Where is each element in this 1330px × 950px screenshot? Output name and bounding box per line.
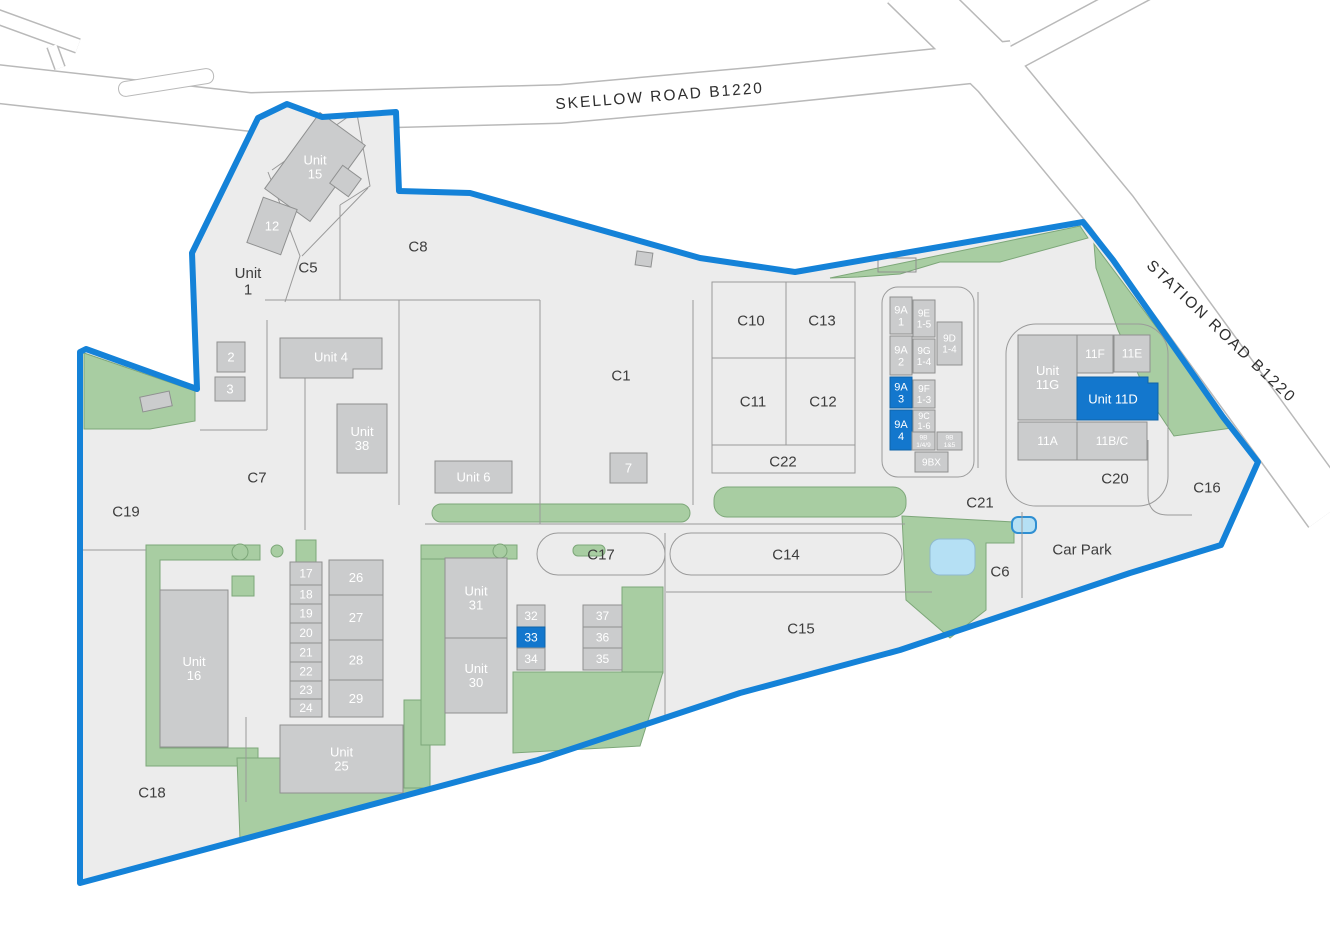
label-text: 11A [1037,434,1057,448]
label-text: 24 [299,701,313,715]
label-text: 11B/C [1096,434,1129,448]
label-text: 20 [299,626,313,640]
building-unit-19[interactable]: 19 [290,604,322,623]
label-text: 32 [524,609,538,623]
label-text: C21 [966,494,994,511]
label-text: 3 [226,382,233,397]
parcel-label-c15: C15 [787,620,815,637]
label-text: C13 [808,312,836,329]
building-unit-36[interactable]: 36 [583,627,622,648]
label-text: C22 [769,453,797,470]
building-unit-23[interactable]: 23 [290,681,322,699]
label-text: C12 [809,393,837,410]
label-text: C17 [587,546,615,563]
label-text: 9C1-6 [917,411,930,431]
parcel-label-c1: C1 [611,367,630,384]
parcel-label-c16: C16 [1193,479,1221,496]
parcel-label-c21: C21 [966,494,994,511]
label-text: C10 [737,312,765,329]
parcel-label-c19: C19 [112,503,140,520]
building-unit-22[interactable]: 22 [290,662,322,681]
building-unit-27[interactable]: 27 [329,595,383,640]
green-blob [493,544,507,558]
building-unit-25[interactable]: Unit25 [280,725,403,793]
building-unit-32[interactable]: 32 [517,605,545,627]
building-unit-11bc[interactable]: 11B/C [1077,422,1147,460]
building-unit-9e[interactable]: 9E1-5 [913,300,935,337]
parcel-label-c17: C17 [587,546,615,563]
building-unit-11d[interactable]: Unit 11D [1077,377,1158,420]
green-band-c22 [714,487,906,517]
label-text: C1 [611,367,630,384]
parcel-label-c13: C13 [808,312,836,329]
label-text: 35 [596,652,610,666]
building-unit-6[interactable]: Unit 6 [435,461,512,493]
building-unit-21[interactable]: 21 [290,643,322,662]
green-blob [232,544,248,560]
label-text: 23 [299,683,313,697]
parcel-label-car-park: Car Park [1052,541,1112,558]
building-unit-11f[interactable]: 11F [1077,335,1113,373]
building-unit-9g[interactable]: 9G1-4 [913,339,935,373]
label-text: 11E [1122,347,1142,361]
building-unit-9f[interactable]: 9F1-3 [913,380,935,408]
building-unit-30[interactable]: Unit30 [445,638,507,713]
building-unit-9c[interactable]: 9C1-6 [913,410,935,432]
label-text: 36 [596,631,610,645]
green-blob [232,576,254,596]
label-text: 28 [349,653,363,668]
label-text: 29 [349,691,363,706]
building-unit-11g[interactable]: Unit11G [1018,335,1077,420]
building-kiosk-c1[interactable] [635,251,653,267]
label-text: 18 [299,588,313,602]
building-unit-9a1[interactable]: 9A1 [890,297,912,334]
parcel-label-c12: C12 [809,393,837,410]
label-text: C20 [1101,470,1129,487]
label-text: Unit 11D [1088,392,1138,407]
site-plan: SKELLOW ROAD B1220 STATION ROAD B1220 [0,0,1330,950]
building-unit-7[interactable]: 7 [610,453,647,483]
green-west-unit31 [421,545,445,745]
building-unit-35[interactable]: 35 [583,648,622,670]
building-unit-9a2[interactable]: 9A2 [890,336,912,375]
label-text: 9D1-4 [942,334,957,356]
label-text: C14 [772,546,800,563]
label-text: 9E1-5 [917,309,932,331]
label-text: 21 [299,646,313,660]
label-text: 7 [625,461,632,476]
label-text: 9G1-4 [917,346,932,368]
building-unit-38[interactable]: Unit38 [337,404,387,473]
building-unit-11e[interactable]: 11E [1114,335,1150,372]
building-unit-3[interactable]: 3 [215,377,245,401]
label-text: 19 [299,607,313,621]
label-text: C7 [247,469,266,486]
building-unit-28[interactable]: 28 [329,640,383,680]
label-text: C16 [1193,479,1221,496]
building-unit-9d[interactable]: 9D1-4 [937,322,962,365]
parcel-label-c18: C18 [138,784,166,801]
green-band-unit6 [432,504,690,522]
small-pond [1012,517,1036,533]
building-unit-24[interactable]: 24 [290,699,322,717]
green-west-triangle [84,353,195,429]
building-unit-34[interactable]: 34 [517,648,545,670]
building-unit-20[interactable]: 20 [290,623,322,643]
label-text: 12 [265,219,279,234]
label-text: 33 [524,631,538,645]
label-text: 34 [524,652,538,666]
label-text: Unit11G [1036,363,1060,392]
building-unit-11a[interactable]: 11A [1018,422,1077,460]
building-unit-31[interactable]: Unit31 [445,558,507,638]
building-unit-9a3[interactable]: 9A3 [890,377,912,408]
label-text: 26 [349,570,363,585]
building-unit-9b-15[interactable]: 9B1&5 [937,432,962,450]
parcel-label-c8: C8 [408,238,427,255]
parcel-label-c11: C11 [740,393,766,410]
label-text: 9F1-3 [917,384,932,406]
label-text: 9BX [922,458,941,469]
parcel-label-c5: C5 [298,259,317,276]
label-text: C15 [787,620,815,637]
green-blob [296,540,316,562]
building-unit-18[interactable]: 18 [290,585,322,604]
parcel-label-c22: C22 [769,453,797,470]
building-unit-37[interactable]: 37 [583,605,622,627]
label-text: 2 [227,350,234,365]
label-text: C19 [112,503,140,520]
building-unit-17[interactable]: 17 [290,562,322,585]
parcel-label-c10: C10 [737,312,765,329]
label-text: 22 [299,665,313,679]
label-text: 11F [1085,347,1105,361]
label-text: C18 [138,784,166,801]
building-unit-9bx[interactable]: 9BX [915,452,948,472]
label-text: 27 [349,610,363,625]
building-unit-9b-149[interactable]: 9B1/4/9 [912,432,935,450]
parcel-label-c7: C7 [247,469,266,486]
building-unit-29[interactable]: 29 [329,680,383,717]
label-text: 37 [596,609,610,623]
parcel-label-c20: C20 [1101,470,1129,487]
green-blob [271,545,283,557]
label-text: Unit 4 [314,350,348,365]
label-text: 17 [299,567,313,581]
building-unit-26[interactable]: 26 [329,560,383,595]
parcel-label-c14: C14 [772,546,800,563]
label-text: C11 [740,393,766,410]
label-text: Car Park [1052,541,1112,558]
building-unit-16[interactable]: Unit16 [160,590,228,747]
building-unit-9a4[interactable]: 9A4 [890,410,912,450]
building-unit-33[interactable]: 33 [517,627,545,648]
building-unit-2[interactable]: 2 [217,342,245,372]
green-east-strip37 [622,587,663,673]
pond [930,539,975,575]
label-text: C6 [990,563,1009,580]
label-text: C8 [408,238,427,255]
label-text: Unit 6 [457,470,491,485]
label-text: C5 [298,259,317,276]
parcel-label-c6: C6 [990,563,1009,580]
